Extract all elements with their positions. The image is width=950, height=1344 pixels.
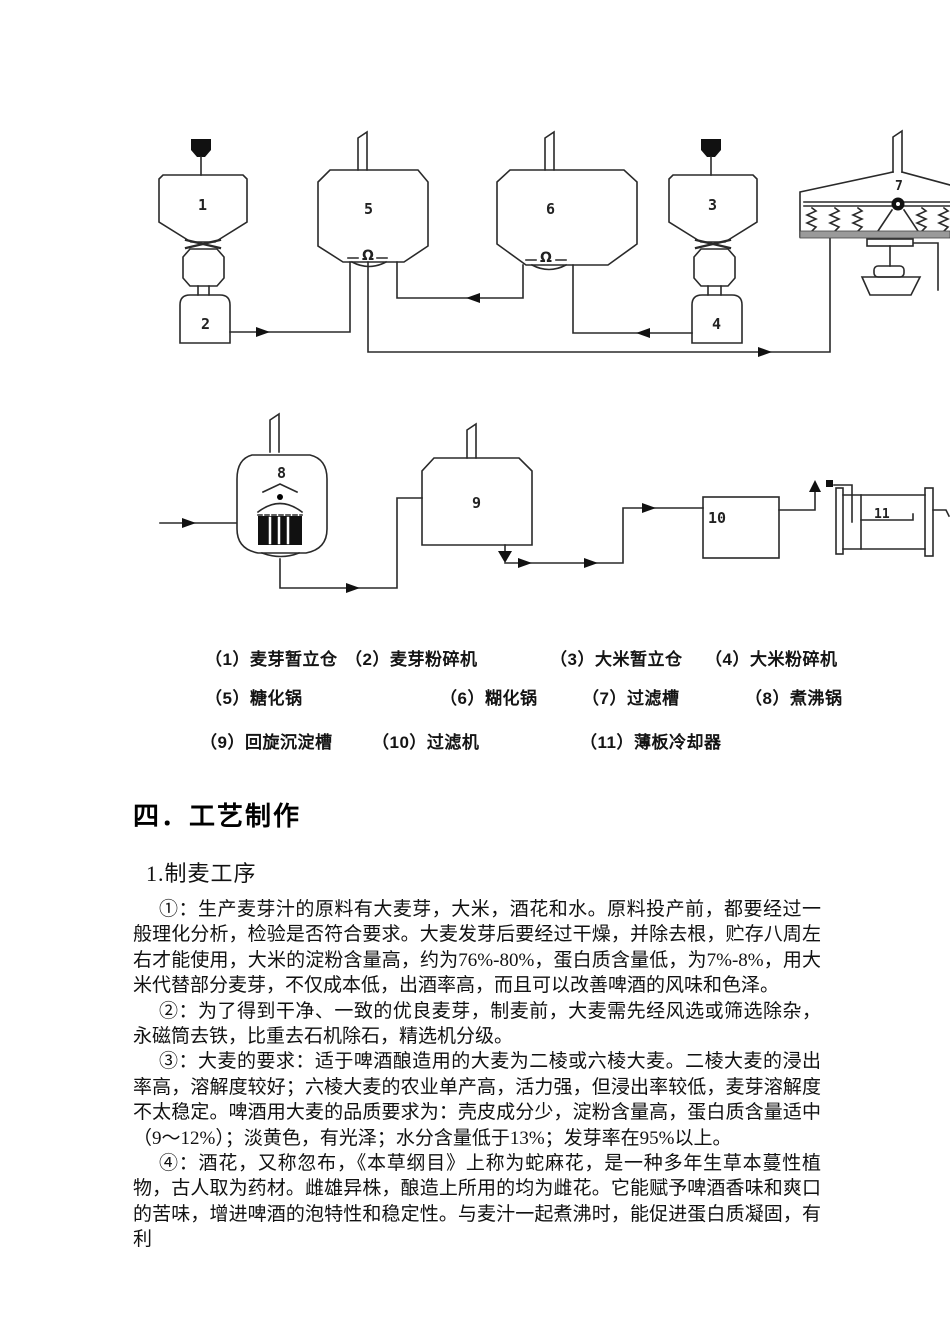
equipment-5-mash-kettle: Ω 5 [318,132,428,267]
equipment-label-5: 5 [364,200,373,218]
heater-omega-5: Ω [362,248,374,264]
equipment-3-rice-silo: 3 [669,139,757,248]
equipment-9-whirlpool: 9 [422,424,532,545]
equipment-1-malt-silo: 1 [159,139,247,248]
paragraph-4: ④：酒花，又称忽布，《本草纲目》上称为蛇麻花，是一种多年生草本蔓性植物，古人取为… [133,1151,821,1253]
subsection-heading: 1.制麦工序 [146,856,257,888]
section-heading: 四．工艺制作 [133,796,301,833]
equipment-4-rice-mill: 4 [692,249,742,343]
legend-item-7: （7）过滤槽 [582,684,679,709]
equipment-6-cereal-cooker: Ω 6 [497,132,637,270]
equipment-label-11: 11 [874,507,890,522]
body-text: ①：生产麦芽汁的原料有大麦芽，大米，酒花和水。原料投产前，都要经过一般理化分析，… [133,897,821,1253]
legend-item-9: （9）回旋沉淀槽 [200,728,332,753]
legend-item-5: （5）糖化锅 [205,684,302,709]
equipment-label-9: 9 [472,494,481,512]
equipment-8-boiling-kettle: 8 [237,414,327,557]
legend-item-2: （2）麦芽粉碎机 [345,645,477,670]
equipment-11-plate-cooler: 11 [834,485,933,556]
equipment-label-2: 2 [201,315,210,333]
heater-omega-6: Ω [540,250,552,266]
legend-item-10: （10）过滤机 [372,728,479,753]
brewing-process-diagram: 1 2 Ω 5 Ω 6 [0,118,950,598]
legend-item-1: （1）麦芽暂立仓 [205,645,337,670]
equipment-10-filter: 10 [703,497,779,558]
equipment-label-4: 4 [712,315,721,333]
legend-item-11: （11）薄板冷却器 [580,728,721,753]
legend-item-6: （6）糊化锅 [440,684,537,709]
document-page: 1 2 Ω 5 Ω 6 [0,0,950,1344]
equipment-label-7: 7 [895,179,903,194]
paragraph-2: ②：为了得到干净、一致的优良麦芽，制麦前，大麦需先经风选或筛选除杂，永磁筒去铁，… [133,999,821,1050]
equipment-label-10: 10 [708,509,726,527]
legend-item-3: （3）大米暂立仓 [550,645,682,670]
equipment-label-3: 3 [708,196,717,214]
equipment-label-6: 6 [546,200,555,218]
paragraph-3: ③：大麦的要求：适于啤酒酿造用的大麦为二棱或六棱大麦。二棱大麦的浸出率高，溶解度… [133,1049,821,1151]
legend-item-8: （8）煮沸锅 [745,684,842,709]
equipment-2-malt-mill: 2 [180,249,230,343]
paragraph-1: ①：生产麦芽汁的原料有大麦芽，大米，酒花和水。原料投产前，都要经过一般理化分析，… [133,897,821,999]
equipment-label-8: 8 [277,464,286,482]
legend-item-4: （4）大米粉碎机 [705,645,837,670]
equipment-7-lauter-tun: 7 [800,131,950,295]
equipment-label-1: 1 [198,196,207,214]
